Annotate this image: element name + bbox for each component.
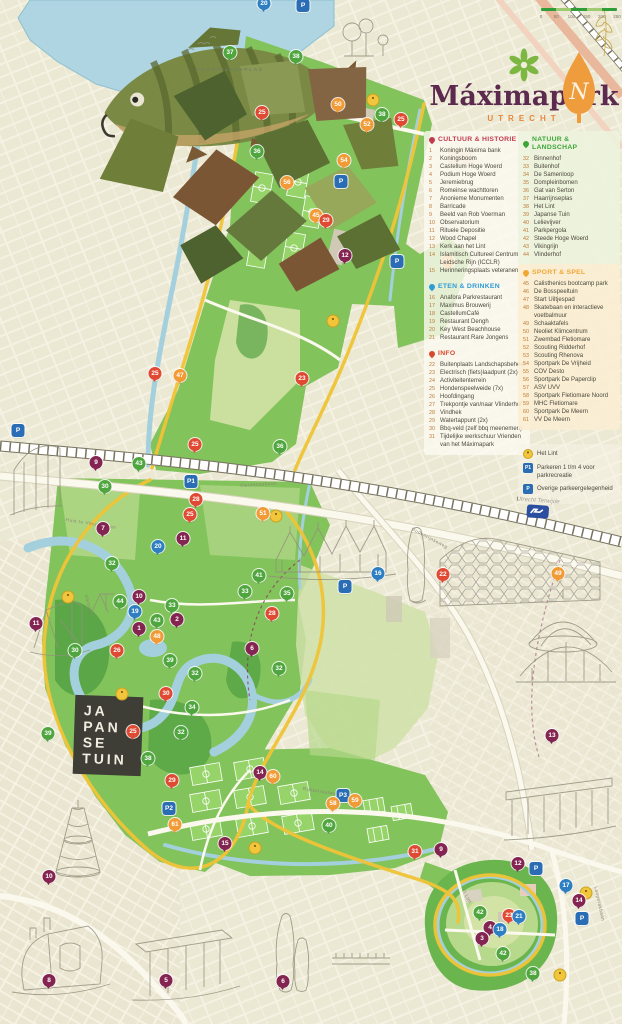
legend-item-number: 37 <box>523 195 532 203</box>
map-marker-25: 25 <box>189 438 202 451</box>
map-marker-P: P <box>297 0 310 12</box>
legend-item: 36Gat van Serton <box>523 187 616 195</box>
legend-item-label: Haarrijnseplas <box>534 195 616 203</box>
map-marker-12: 12 <box>512 857 525 870</box>
legend-item-number: 5 <box>429 179 438 187</box>
legend-item-number: 11 <box>429 227 438 235</box>
map-marker-P: P <box>576 912 589 925</box>
footer-legend-label: Overige parkeergelegenheid <box>537 484 613 493</box>
map-marker-30: 30 <box>160 687 173 700</box>
legend-item-number: 22 <box>429 361 438 369</box>
footer-legend-item: •Het Lint <box>523 449 616 459</box>
legend-item-number: 45 <box>523 280 532 288</box>
legend-item-label: Lelievijver <box>534 219 616 227</box>
map-marker-13: 13 <box>546 729 559 742</box>
legend-item-label: Sportpark De Vrijheid <box>534 360 616 368</box>
legend-item-label: Sportpark De Paperclip <box>534 376 616 384</box>
legend-section-footer: •Het LintP1Parkeren 1 t/m 4 voor parkrec… <box>523 449 616 494</box>
map-marker-14: 14 <box>573 894 586 907</box>
legend-item: 37Haarrijnseplas <box>523 195 616 203</box>
legend-item-label: Tijdelijke werkschuur Vrienden van het M… <box>440 433 526 449</box>
legend-item: 21Restaurant Rare Jongens <box>429 334 526 342</box>
legend-item-label: Trekpontje van/naar Vlinderhof <box>440 401 526 409</box>
legend-item-number: 17 <box>429 302 438 310</box>
map-marker-25: 25 <box>395 113 408 126</box>
legend-item: 52Scouting Ridderhof <box>523 344 616 352</box>
legend-item-label: Vikingrijn <box>534 243 616 251</box>
legend-item-number: 32 <box>523 155 532 163</box>
legend-item-number: 16 <box>429 294 438 302</box>
legend-item-label: Podium Hoge Woerd <box>440 171 526 179</box>
legend-pin-icon <box>428 350 436 358</box>
legend-item-number: 6 <box>429 187 438 195</box>
legend-item-label: Watertappunt (2x) <box>440 417 526 425</box>
map-marker-28: 28 <box>266 607 279 620</box>
map-marker-7: 7 <box>97 522 110 535</box>
map-marker-41: 41 <box>253 569 266 582</box>
scale-tick-label: 50 <box>554 14 559 19</box>
legend-item: 54Sportpark De Vrijheid <box>523 360 616 368</box>
legend-item-label: Zwembad Fletiomare <box>534 336 616 344</box>
map-marker-29: 29 <box>166 774 179 787</box>
legend-item-label: Gat van Serton <box>534 187 616 195</box>
legend-item-number: 23 <box>429 369 438 377</box>
legend-item-number: 29 <box>429 417 438 425</box>
map-marker-lint: • <box>368 95 379 106</box>
map-marker-60: 60 <box>267 770 280 783</box>
map-marker-47: 47 <box>174 369 187 382</box>
map-marker-8: 8 <box>43 974 56 987</box>
footer-legend-item: POverige parkeergelegenheid <box>523 484 616 494</box>
map-marker-49: 49 <box>552 567 565 580</box>
legend-item: 44Vlinderhof <box>523 251 616 259</box>
legend-item-number: 39 <box>523 211 532 219</box>
map-marker-59: 59 <box>349 794 362 807</box>
map-marker-58: 58 <box>327 797 340 810</box>
legend-item: 55COV Desto <box>523 368 616 376</box>
legend-item-number: 21 <box>429 334 438 342</box>
map-marker-61: 61 <box>169 818 182 831</box>
legend-header-info: INFO <box>429 350 526 358</box>
legend-item-number: 13 <box>429 243 438 251</box>
legend-item-number: 48 <box>523 304 532 320</box>
scale-bar-segments <box>541 8 617 11</box>
map-marker-25: 25 <box>256 106 269 119</box>
legend-item-label: Calisthenics bootcamp park <box>534 280 616 288</box>
legend-header-label: SPORT & SPEL <box>532 269 585 277</box>
legend-item: 10Observatorium <box>429 219 526 227</box>
legend-item: 18CastellumCafé <box>429 310 526 318</box>
map-marker-29: 29 <box>320 214 333 227</box>
legend-item-label: Binnenhof <box>534 155 616 163</box>
legend-item: 4Podium Hoge Woerd <box>429 171 526 179</box>
map-marker-15: 15 <box>219 837 232 850</box>
map-marker-18: 18 <box>494 923 507 936</box>
map-marker-52: 52 <box>361 118 374 131</box>
map-marker-36: 36 <box>251 145 264 158</box>
legend-item: 17Maximus Brouwerij <box>429 302 526 310</box>
parking-icon: P <box>523 484 533 494</box>
map-marker-lint: • <box>555 970 566 981</box>
legend-pin-icon <box>522 140 530 148</box>
scale-tick-label: 200 <box>598 14 606 19</box>
map-marker-31: 31 <box>409 845 422 858</box>
map-marker-6: 6 <box>246 642 259 655</box>
legend-item: 30Bbq-veld (zelf bbq meenemen) <box>429 425 526 433</box>
legend-panel-left: CULTUUR & HISTORIE1Koningin Máxima bank2… <box>424 131 530 455</box>
legend-item-label: Romeinse wachttoren <box>440 187 526 195</box>
legend-item-label: Anafora Parkrestaurant <box>440 294 526 302</box>
legend-header-label: INFO <box>438 350 455 358</box>
legend-item-label: VV De Meern <box>534 416 616 424</box>
map-marker-11: 11 <box>177 532 190 545</box>
legend-item: 31Tijdelijke werkschuur Vrienden van het… <box>429 433 526 449</box>
map-marker-23: 23 <box>296 372 309 385</box>
legend-item-number: 57 <box>523 384 532 392</box>
legend-item: 26Hoofdingang <box>429 393 526 401</box>
legend-item-label: Beeld van Rob Voerman <box>440 211 526 219</box>
legend-item-number: 14 <box>429 251 438 267</box>
legend-panel-sport: SPORT & SPEL45Calisthenics bootcamp park… <box>518 264 620 430</box>
legend-item: 8Barricade <box>429 203 526 211</box>
map-marker-42: 42 <box>474 906 487 919</box>
legend-item-number: 59 <box>523 400 532 408</box>
legend-item-label: Islamitisch Cultureel Centrum Leidsche R… <box>440 251 526 267</box>
map-marker-20: 20 <box>152 540 165 553</box>
legend-header-sport: SPORT & SPEL <box>523 269 616 277</box>
legend-item-label: Sportpark De Meern <box>534 408 616 416</box>
map-marker-P1: P1 <box>185 475 198 488</box>
map-marker-30: 30 <box>99 480 112 493</box>
legend-item: 16Anafora Parkrestaurant <box>429 294 526 302</box>
scale-bar: 050100150200250 <box>541 8 617 26</box>
legend-item: 41Parkpergola <box>523 227 616 235</box>
legend-item: 19Restaurant Dengh <box>429 318 526 326</box>
footer-legend-label: Het Lint <box>537 449 558 458</box>
map-marker-2: 2 <box>171 613 184 626</box>
map-marker-lint: • <box>250 843 261 854</box>
legend-item: 59MHC Fletiomare <box>523 400 616 408</box>
legend-item: 60Sportpark De Meern <box>523 408 616 416</box>
legend-item-label: Key West Beachhouse <box>440 326 526 334</box>
map-marker-25: 25 <box>184 508 197 521</box>
legend-item-number: 31 <box>429 433 438 449</box>
legend-item-number: 19 <box>429 318 438 326</box>
legend-item: 39Japanse Tuin <box>523 211 616 219</box>
footer-legend-item: P1Parkeren 1 t/m 4 voor parkrecreatie <box>523 463 616 480</box>
map-marker-16: 16 <box>372 567 385 580</box>
legend-item: 57ASV UVV <box>523 384 616 392</box>
legend-item: 61VV De Meern <box>523 416 616 424</box>
legend-item-number: 50 <box>523 328 532 336</box>
legend-item-number: 25 <box>429 385 438 393</box>
legend-item-number: 61 <box>523 416 532 424</box>
legend-item-label: ASV UVV <box>534 384 616 392</box>
map-marker-17: 17 <box>560 879 573 892</box>
map-marker-lint: • <box>271 511 282 522</box>
legend-item-label: Maximus Brouwerij <box>440 302 526 310</box>
legend-item: 40Lelievijver <box>523 219 616 227</box>
map-marker-28: 28 <box>190 493 203 506</box>
legend-item-label: De Bosspeeltuin <box>534 288 616 296</box>
map-marker-3: 3 <box>476 932 489 945</box>
legend-section-sport: SPORT & SPEL45Calisthenics bootcamp park… <box>523 269 616 424</box>
legend-item-label: Wood Chapel <box>440 235 526 243</box>
legend-item: 53Scouting Rhenova <box>523 352 616 360</box>
legend-item-number: 24 <box>429 377 438 385</box>
map-marker-38: 38 <box>290 50 303 63</box>
map-marker-lint: • <box>117 689 128 700</box>
map-marker-33: 33 <box>239 585 252 598</box>
legend-item-label: Sportpark Fletiomare Noord <box>534 392 616 400</box>
legend-item-label: Scouting Ridderhof <box>534 344 616 352</box>
legend-item-number: 27 <box>429 401 438 409</box>
legend-item: 13Kerk aan het Lint <box>429 243 526 251</box>
map-marker-51: 51 <box>257 507 270 520</box>
legend-item-number: 4 <box>429 171 438 179</box>
map-marker-lint: • <box>63 592 74 603</box>
map-marker-32: 32 <box>189 667 202 680</box>
legend-item-number: 9 <box>429 211 438 219</box>
legend-item-label: Parkpergola <box>534 227 616 235</box>
map-marker-39: 39 <box>164 654 177 667</box>
legend-item-number: 49 <box>523 320 532 328</box>
legend-item: 35Dompleinbomen <box>523 179 616 187</box>
legend-item-number: 15 <box>429 267 438 275</box>
map-marker-22: 22 <box>437 568 450 581</box>
legend-item-number: 33 <box>523 163 532 171</box>
legend-item-number: 53 <box>523 352 532 360</box>
legend-item-label: Vlinderhof <box>534 251 616 259</box>
map-marker-38: 38 <box>376 108 389 121</box>
map-marker-25: 25 <box>127 725 140 738</box>
legend-item: 32Binnenhof <box>523 155 616 163</box>
legend-item: 7Anonieme Monumenten <box>429 195 526 203</box>
legend-item-label: Schaaktafels <box>534 320 616 328</box>
legend-item-label: Castellum Hoge Woerd <box>440 163 526 171</box>
scale-tick-label: 150 <box>583 14 591 19</box>
legend-panel-footer: •Het LintP1Parkeren 1 t/m 4 voor parkrec… <box>518 444 620 504</box>
legend-item-label: De Samenloop <box>534 171 616 179</box>
legend-item: 43Vikingrijn <box>523 243 616 251</box>
map-marker-43: 43 <box>151 614 164 627</box>
legend-item: 48Skatebaan en interactieve voetbalmuur <box>523 304 616 320</box>
maximapark-logo-icon <box>506 48 542 82</box>
legend-item-number: 40 <box>523 219 532 227</box>
legend-item-number: 34 <box>523 171 532 179</box>
legend-item-number: 38 <box>523 203 532 211</box>
map-marker-P: P <box>530 862 543 875</box>
legend-item-label: Electrisch (fiets)laadpunt (2x) <box>440 369 526 377</box>
legend-item-number: 56 <box>523 376 532 384</box>
map-marker-32: 32 <box>175 726 188 739</box>
legend-item-label: Vindhek <box>440 409 526 417</box>
legend-item: 27Trekpontje van/naar Vlinderhof <box>429 401 526 409</box>
legend-item: 9Beeld van Rob Voerman <box>429 211 526 219</box>
legend-item: 49Schaaktafels <box>523 320 616 328</box>
legend-item-number: 44 <box>523 251 532 259</box>
lint-lamp-icon: • <box>523 449 533 459</box>
legend-item-label: Jeremiebrug <box>440 179 526 187</box>
legend-header-eten: ETEN & DRINKEN <box>429 283 526 291</box>
legend-item-number: 52 <box>523 344 532 352</box>
legend-item: 28Vindhek <box>429 409 526 417</box>
legend-item: 56Sportpark De Paperclip <box>523 376 616 384</box>
map-marker-6: 6 <box>277 975 290 988</box>
legend-item-number: 8 <box>429 203 438 211</box>
map-marker-14: 14 <box>254 766 267 779</box>
legend-item-number: 7 <box>429 195 438 203</box>
map-marker-50: 50 <box>332 98 345 111</box>
legend-item: 14Islamitisch Cultureel Centrum Leidsche… <box>429 251 526 267</box>
legend-item-number: 28 <box>429 409 438 417</box>
legend-item-number: 46 <box>523 288 532 296</box>
legend-item-label: Bbq-veld (zelf bbq meenemen) <box>440 425 526 433</box>
legend-item: 50Neoliet Klimcentrum <box>523 328 616 336</box>
map-marker-5: 5 <box>160 974 173 987</box>
legend-panel-natuur: NATUUR & LANDSCHAP32Binnenhof33Buitenhof… <box>518 131 620 265</box>
map-marker-9: 9 <box>435 843 448 856</box>
legend-section-info: INFO22Buitenplaats Landschapsbeheer23Ele… <box>429 350 526 449</box>
legend-item-number: 55 <box>523 368 532 376</box>
legend-item-number: 47 <box>523 296 532 304</box>
legend-item-label: Barricade <box>440 203 526 211</box>
map-marker-32: 32 <box>106 557 119 570</box>
legend-header-natuur: NATUUR & LANDSCHAP <box>523 136 616 152</box>
map-marker-35: 35 <box>281 587 294 600</box>
legend-item-label: Activiteitenterrein <box>440 377 526 385</box>
map-marker-P2: P2 <box>163 802 176 815</box>
map-marker-39: 39 <box>42 727 55 740</box>
legend-item-number: 26 <box>429 393 438 401</box>
legend-item-label: Start Uiltjespad <box>534 296 616 304</box>
map-marker-P: P <box>339 580 352 593</box>
legend-header-cultuur: CULTUUR & HISTORIE <box>429 136 526 144</box>
map-marker-43: 43 <box>133 457 146 470</box>
compass-letter: N <box>568 80 589 105</box>
legend-item-number: 43 <box>523 243 532 251</box>
legend-item-number: 3 <box>429 163 438 171</box>
legend-item: 33Buitenhof <box>523 163 616 171</box>
legend-item-label: Scouting Rhenova <box>534 352 616 360</box>
legend-item: 23Electrisch (fiets)laadpunt (2x) <box>429 369 526 377</box>
legend-item: 6Romeinse wachttoren <box>429 187 526 195</box>
map-marker-38: 38 <box>142 752 155 765</box>
legend-item-label: Dompleinbomen <box>534 179 616 187</box>
legend-item-label: Anonieme Monumenten <box>440 195 526 203</box>
scale-tick-label: 250 <box>613 14 621 19</box>
legend-header-label: CULTUUR & HISTORIE <box>438 136 516 144</box>
legend-item-label: Restaurant Rare Jongens <box>440 334 526 342</box>
legend-item-number: 1 <box>429 147 438 155</box>
legend-section-natuur: NATUUR & LANDSCHAP32Binnenhof33Buitenhof… <box>523 136 616 259</box>
legend-item: 2Koningsboom <box>429 155 526 163</box>
legend-item-number: 42 <box>523 235 532 243</box>
map-marker-P: P <box>12 424 25 437</box>
scale-tick-label: 0 <box>540 14 543 19</box>
legend-item-label: Kerk aan het Lint <box>440 243 526 251</box>
legend-item-number: 60 <box>523 408 532 416</box>
map-marker-10: 10 <box>133 590 146 603</box>
legend-section-cultuur: CULTUUR & HISTORIE1Koningin Máxima bank2… <box>429 136 526 275</box>
map-marker-P: P <box>335 175 348 188</box>
legend-pin-icon <box>522 269 530 277</box>
legend-item-label: Herinneringsplaats veteranen <box>440 267 526 275</box>
legend-item: 38Het Lint <box>523 203 616 211</box>
legend-item-label: Hondenspeelweide (7x) <box>440 385 526 393</box>
legend-item-number: 12 <box>429 235 438 243</box>
map-marker-56: 56 <box>281 176 294 189</box>
legend-item-label: Restaurant Dengh <box>440 318 526 326</box>
map-marker-36: 36 <box>274 440 287 453</box>
legend-item-label: Skatebaan en interactieve voetbalmuur <box>534 304 616 320</box>
legend-header-label: NATUUR & LANDSCHAP <box>532 136 616 152</box>
legend-item: 47Start Uiltjespad <box>523 296 616 304</box>
legend-item-label: Buitenplaats Landschapsbeheer <box>440 361 526 369</box>
legend-item: 58Sportpark Fletiomare Noord <box>523 392 616 400</box>
legend-item-label: Koningin Máxima bank <box>440 147 526 155</box>
legend-item: 51Zwembad Fletiomare <box>523 336 616 344</box>
legend-item-label: Hoofdingang <box>440 393 526 401</box>
legend-item-label: MHC Fletiomare <box>534 400 616 408</box>
map-marker-54: 54 <box>338 154 351 167</box>
legend-item: 20Key West Beachhouse <box>429 326 526 334</box>
legend-item: 15Herinneringsplaats veteranen <box>429 267 526 275</box>
map-marker-9: 9 <box>90 456 103 469</box>
map-marker-32: 32 <box>273 662 286 675</box>
map-marker-44: 44 <box>114 595 127 608</box>
legend-item-number: 2 <box>429 155 438 163</box>
legend-item-number: 58 <box>523 392 532 400</box>
map-marker-lint: • <box>328 316 339 327</box>
map-marker-12: 12 <box>339 249 352 262</box>
legend-item-label: Het Lint <box>534 203 616 211</box>
map-marker-25: 25 <box>149 367 162 380</box>
legend-item-number: 10 <box>429 219 438 227</box>
legend-item: 1Koningin Máxima bank <box>429 147 526 155</box>
legend-item-label: Japanse Tuin <box>534 211 616 219</box>
map-marker-48: 48 <box>151 630 164 643</box>
legend-item-number: 51 <box>523 336 532 344</box>
legend-item: 46De Bosspeeltuin <box>523 288 616 296</box>
legend-item: 22Buitenplaats Landschapsbeheer <box>429 361 526 369</box>
north-compass: N <box>556 50 602 126</box>
legend-item-label: Observatorium <box>440 219 526 227</box>
legend-item: 42Steede Hoge Woerd <box>523 235 616 243</box>
map-marker-11: 11 <box>30 617 43 630</box>
map-marker-38: 38 <box>527 967 540 980</box>
map-marker-42: 42 <box>497 947 510 960</box>
legend-item-label: Koningsboom <box>440 155 526 163</box>
legend-pin-icon <box>428 283 436 291</box>
legend-item: 34De Samenloop <box>523 171 616 179</box>
legend-item: 25Hondenspeelweide (7x) <box>429 385 526 393</box>
map-marker-P: P <box>391 255 404 268</box>
legend-item-number: 36 <box>523 187 532 195</box>
legend-item-number: 35 <box>523 179 532 187</box>
legend-item-number: 41 <box>523 227 532 235</box>
legend-item-number: 18 <box>429 310 438 318</box>
legend-item: 3Castellum Hoge Woerd <box>429 163 526 171</box>
legend-item-number: 54 <box>523 360 532 368</box>
map-marker-26: 26 <box>111 644 124 657</box>
map-marker-19: 19 <box>129 605 142 618</box>
legend-item-label: Buitenhof <box>534 163 616 171</box>
map-marker-10: 10 <box>43 870 56 883</box>
legend-item: 29Watertappunt (2x) <box>429 417 526 425</box>
legend-pin-icon <box>428 136 436 144</box>
legend-item-label: CastellumCafé <box>440 310 526 318</box>
